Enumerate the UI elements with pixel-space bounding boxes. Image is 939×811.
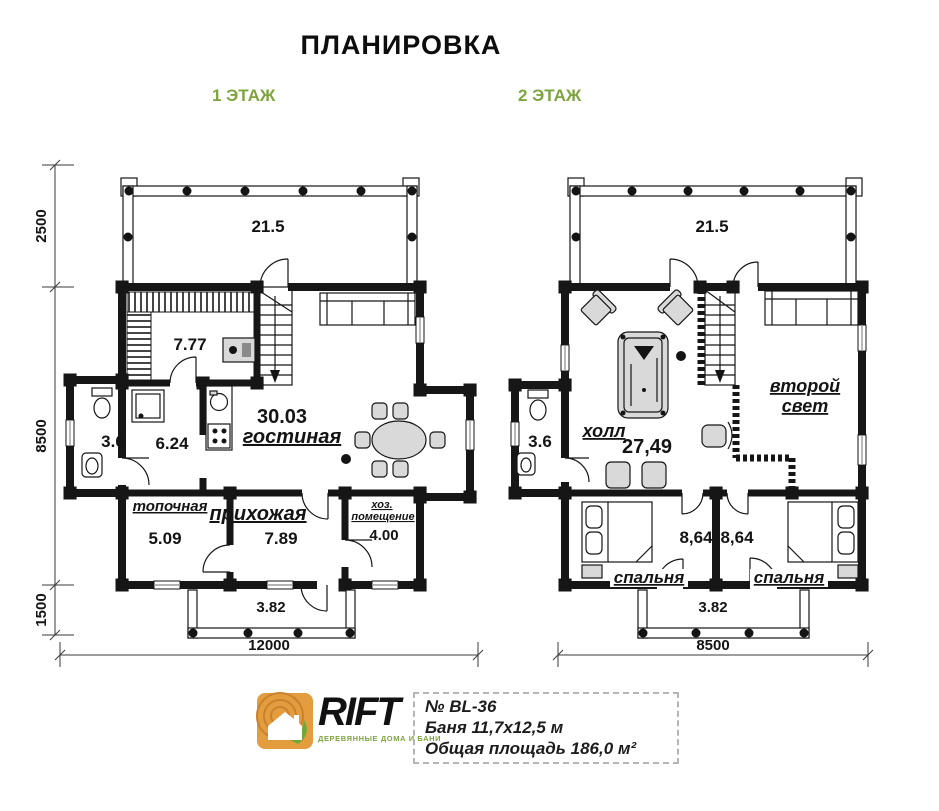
floor1-terrace-area-label: 21.5 xyxy=(251,217,284,236)
shower-cabin xyxy=(132,390,164,422)
utility-name-line1: хоз. xyxy=(370,499,392,511)
project-info-box: № BL-36 Баня 11,7х12,5 м Общая площадь 1… xyxy=(413,692,679,764)
bed-right xyxy=(788,502,858,578)
floor1-dim-2500: 2500 xyxy=(33,209,50,242)
bedroom-right-name-label: спальня xyxy=(754,568,824,587)
floor1-label: 1 ЭТАЖ xyxy=(212,86,275,106)
bedroom-left-area-label: 8,64 xyxy=(679,528,713,547)
page-title: ПЛАНИРОВКА xyxy=(0,30,802,61)
second-light-line2: свет xyxy=(782,396,828,416)
column-post-f2 xyxy=(676,351,686,361)
shower-area-label: 6.24 xyxy=(155,434,189,453)
hallway-name-label: прихожая xyxy=(209,503,306,525)
sink-f1 xyxy=(82,453,102,477)
floor2-dim-8500: 8500 xyxy=(696,637,729,654)
sofa-f2 xyxy=(765,291,858,325)
toilet-f2 xyxy=(528,390,548,420)
bathroom-area-label-f1: 3.6 xyxy=(101,432,125,451)
bedroom-left-name-label: спальня xyxy=(614,568,684,587)
hall-name-label: холл xyxy=(582,421,626,441)
utility-name-line2: помещение xyxy=(351,511,414,523)
bed-left xyxy=(582,502,652,578)
column-post xyxy=(341,454,351,464)
sauna-stove xyxy=(223,338,255,362)
living-area-label: 30.03 xyxy=(257,406,307,428)
bathroom-area-label-f2: 3.6 xyxy=(528,432,552,451)
floor1-plan: 2500 8500 1500 12000 21.5 xyxy=(20,140,500,670)
living-name-label: гостиная xyxy=(243,426,342,448)
stairs-f2 xyxy=(705,287,735,385)
stairs xyxy=(258,287,292,385)
sauna-bench-top xyxy=(127,292,257,312)
utility-area-label: 4.00 xyxy=(369,527,398,544)
floor1-dim-8500: 8500 xyxy=(33,419,50,452)
porch-area-label: 3.82 xyxy=(256,599,285,616)
project-total-area: Общая площадь 186,0 м² xyxy=(425,738,677,759)
hall-area-label: 27,49 xyxy=(622,436,672,458)
armchair-left xyxy=(578,289,617,328)
furnace-area-label: 5.09 xyxy=(148,529,181,548)
sauna-bench-left xyxy=(127,312,151,380)
second-light-line1: второй xyxy=(770,376,840,396)
rift-logo-icon xyxy=(256,692,314,750)
floor1-dim-1500: 1500 xyxy=(33,593,50,626)
sofa xyxy=(320,293,415,325)
furnace-name-label: топочная xyxy=(133,498,208,515)
floor2-plan: 8500 21.5 xyxy=(500,140,939,670)
project-size: Баня 11,7х12,5 м xyxy=(425,717,677,738)
armchair-right xyxy=(657,289,696,328)
floor2-terrace-area-label: 21.5 xyxy=(695,217,728,236)
balcony-area-label: 3.82 xyxy=(698,599,727,616)
ottoman-right xyxy=(642,462,666,488)
dining-set xyxy=(355,403,445,477)
sink-f2 xyxy=(517,453,535,475)
kitchen-unit xyxy=(206,386,232,450)
floor1-dim-12000: 12000 xyxy=(248,637,290,654)
floorplan-page: ПЛАНИРОВКА 1 ЭТАЖ 2 ЭТАЖ 2500 8500 1500 … xyxy=(0,0,939,811)
ottoman-left xyxy=(606,462,630,488)
bedroom-right-area-label: 8,64 xyxy=(720,528,754,547)
toilet-f1 xyxy=(92,388,112,418)
sauna-area-label: 7.77 xyxy=(173,335,206,354)
project-model: № BL-36 xyxy=(425,696,677,717)
reading-chair xyxy=(702,422,732,449)
hallway-area-label: 7.89 xyxy=(264,529,297,548)
floor2-label: 2 ЭТАЖ xyxy=(518,86,581,106)
billiard-table xyxy=(618,332,668,418)
